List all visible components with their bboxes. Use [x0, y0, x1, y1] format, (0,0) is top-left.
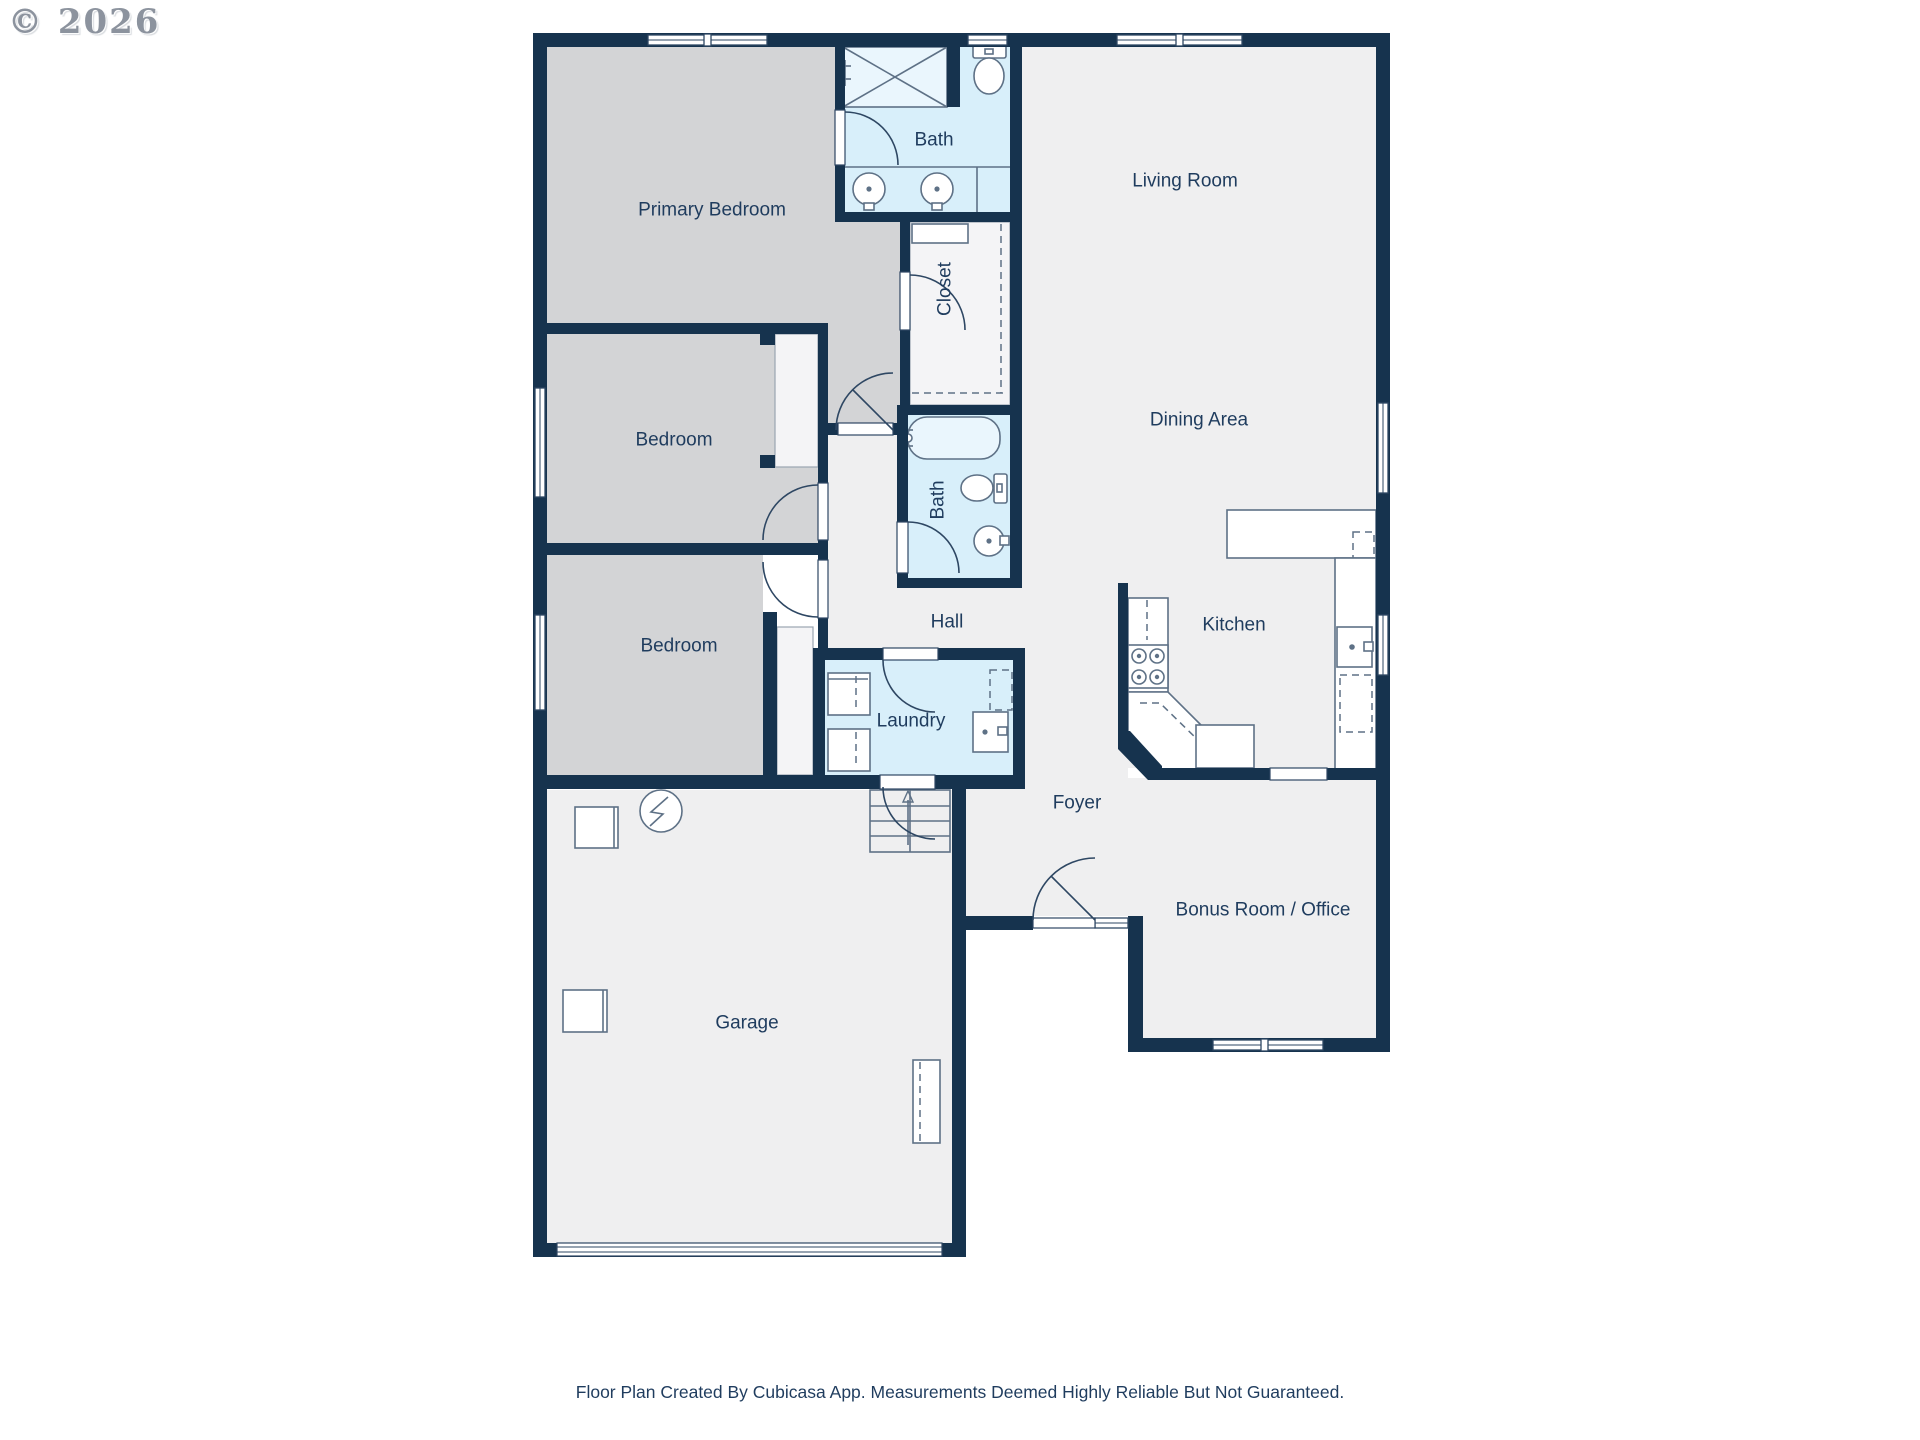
- disclaimer-text: Floor Plan Created By Cubicasa App. Meas…: [0, 1382, 1920, 1403]
- door-leaf: [835, 110, 845, 165]
- toilet-icon: [973, 45, 1006, 94]
- room-label-primary-bedroom: Primary Bedroom: [638, 200, 786, 221]
- room-label-dining-area: Dining Area: [1150, 410, 1249, 431]
- appliance-icon: [563, 990, 607, 1032]
- threshold: [880, 775, 935, 789]
- room-label-bonus-room: Bonus Room / Office: [1176, 900, 1351, 921]
- window: [648, 34, 767, 46]
- threshold: [838, 423, 893, 435]
- bedroom2-closet-area: [777, 627, 813, 775]
- room-label-bath-hall: Bath: [928, 480, 949, 519]
- door-leaf: [818, 483, 828, 540]
- room-label-kitchen: Kitchen: [1202, 615, 1265, 636]
- bedroom1-closet-area: [775, 334, 818, 467]
- primary-closet-area: [910, 222, 1010, 405]
- washer-icon: [828, 673, 870, 715]
- door-leaf: [897, 522, 908, 573]
- door-arc: [763, 562, 818, 617]
- window: [968, 35, 1007, 45]
- furnace-icon: [575, 807, 618, 848]
- room-label-bath-primary: Bath: [914, 130, 953, 151]
- window: [535, 615, 545, 710]
- toilet-icon: [961, 474, 1007, 503]
- threshold: [883, 648, 938, 660]
- dishwasher-icon: [1196, 725, 1254, 768]
- water-heater-icon: [640, 790, 682, 832]
- window: [1117, 34, 1242, 46]
- kitchen-right-counter: [1335, 558, 1376, 775]
- garage-door: [557, 1243, 942, 1256]
- shower-icon: [839, 47, 947, 107]
- bathtub-icon: [903, 417, 1000, 459]
- dryer-icon: [828, 729, 870, 771]
- room-label-garage: Garage: [715, 1013, 778, 1034]
- room-label-bedroom-1: Bedroom: [635, 430, 712, 451]
- window: [1095, 918, 1128, 928]
- window: [1213, 1039, 1323, 1051]
- threshold: [1270, 768, 1327, 780]
- door-leaf: [900, 272, 910, 330]
- workbench-icon: [913, 1060, 940, 1143]
- room-label-laundry: Laundry: [877, 711, 946, 732]
- window: [535, 388, 545, 497]
- front-door-threshold: [1033, 918, 1095, 928]
- window: [1378, 403, 1388, 493]
- room-label-foyer: Foyer: [1053, 793, 1102, 814]
- room-label-hall: Hall: [931, 612, 964, 633]
- room-label-closet: Closet: [935, 261, 956, 316]
- floor-plan: Primary Bedroom Bath Living Room Closet …: [0, 0, 1920, 1440]
- door-leaf: [818, 560, 828, 618]
- room-label-living-room: Living Room: [1132, 171, 1238, 192]
- window: [1378, 615, 1388, 675]
- room-label-bedroom-2: Bedroom: [640, 636, 717, 657]
